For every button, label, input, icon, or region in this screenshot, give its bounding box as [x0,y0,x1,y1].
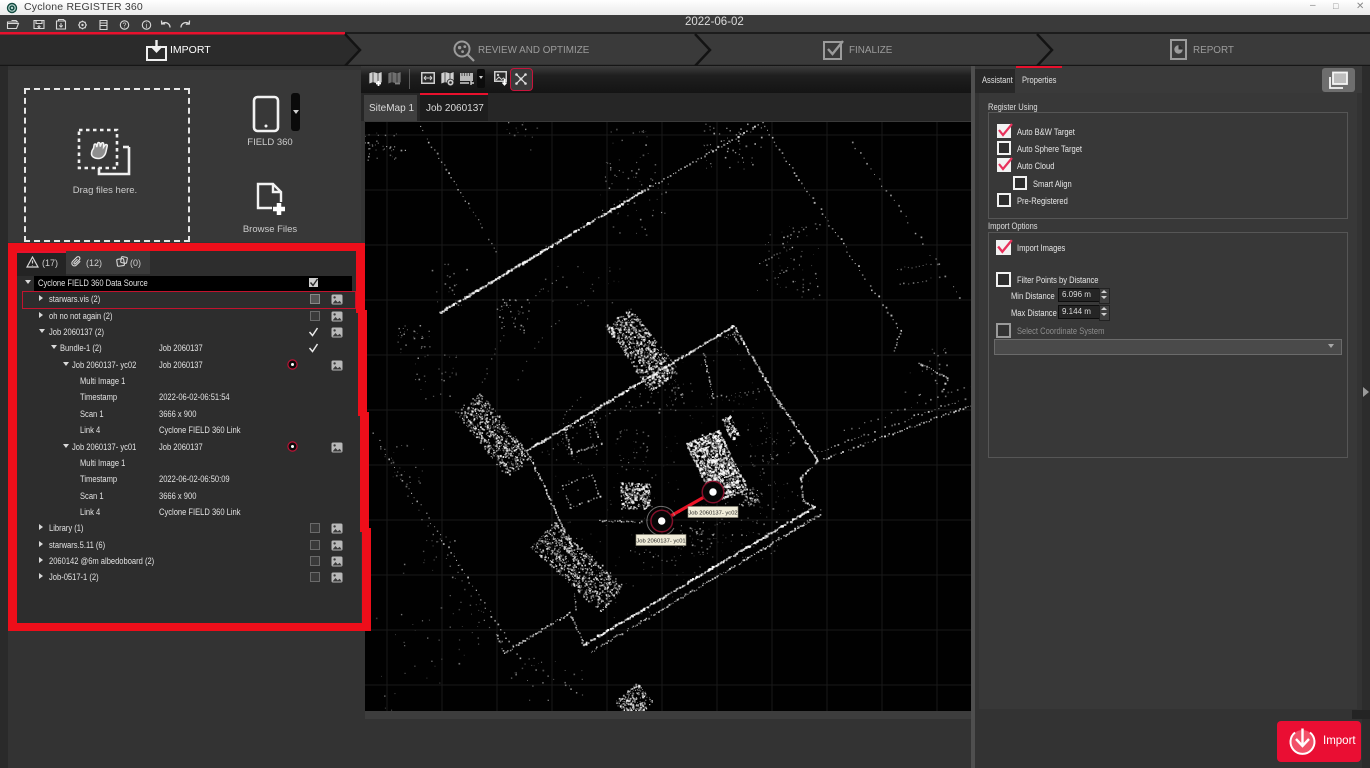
svg-text:i: i [146,21,148,30]
svg-text:?: ? [123,23,127,30]
